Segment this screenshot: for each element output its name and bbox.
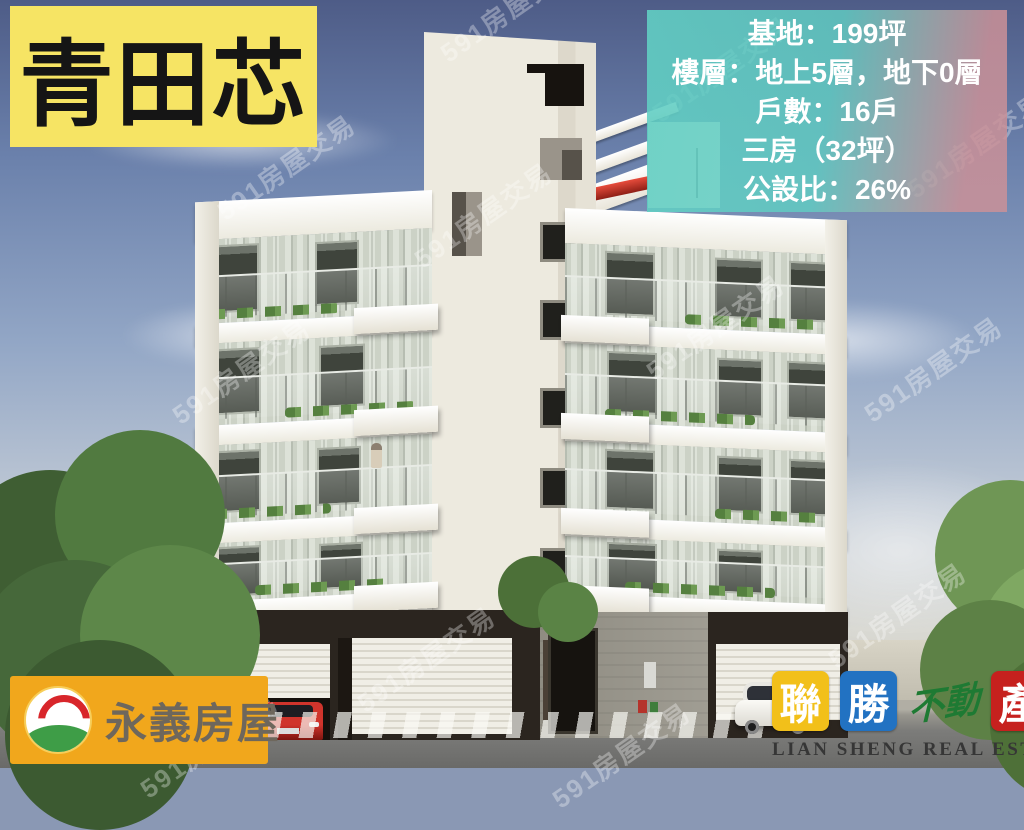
tower-recess [452,192,482,256]
info-line-site-area: 基地：199坪 [748,14,907,53]
right-wing [565,208,847,624]
info-line-public-ratio: 公設比：26% [743,170,911,209]
person-figure [371,443,382,468]
liansheng-logo: 聯 勝 不動 產 LIAN SHENG REAL ESTATE [772,670,1024,768]
tower-top-window [545,70,584,106]
liansheng-tile-red: 產 [991,671,1024,731]
liansheng-tile-yellow: 聯 [772,671,829,731]
balcony-canopy [561,315,649,345]
corner-pier [825,219,847,624]
balcony-canopy [354,406,438,436]
balcony-canopy [561,508,649,538]
balcony-canopy [354,504,438,534]
yongyi-sun-hill-icon [24,686,92,754]
balcony-canopy [561,413,649,443]
project-title-banner: 青田芯 [10,6,317,147]
property-info-box: 基地：199坪 樓層：地上5層，地下0層 戶數：16戶 三房（32坪） 公設比：… [647,10,1007,212]
project-title: 青田芯 [19,9,307,145]
balcony-canopy [354,304,438,334]
left-wing [195,190,432,624]
info-line-layout: 三房（32坪） [741,131,912,170]
balcony-canopy [354,582,438,612]
liansheng-tile-blue: 勝 [840,671,897,731]
yongyi-brand-name: 永義房屋 [105,690,281,751]
yongyi-logo-box: 永義房屋 [10,676,268,764]
liansheng-english-name: LIAN SHENG REAL ESTATE [772,739,1024,761]
info-line-units: 戶數：16戶 [755,92,898,131]
tower-recess [540,138,582,180]
intercom-panel [644,662,656,688]
liansheng-script-char: 不動 [908,670,979,733]
info-line-floors: 樓層：地上5層，地下0層 [671,53,982,92]
